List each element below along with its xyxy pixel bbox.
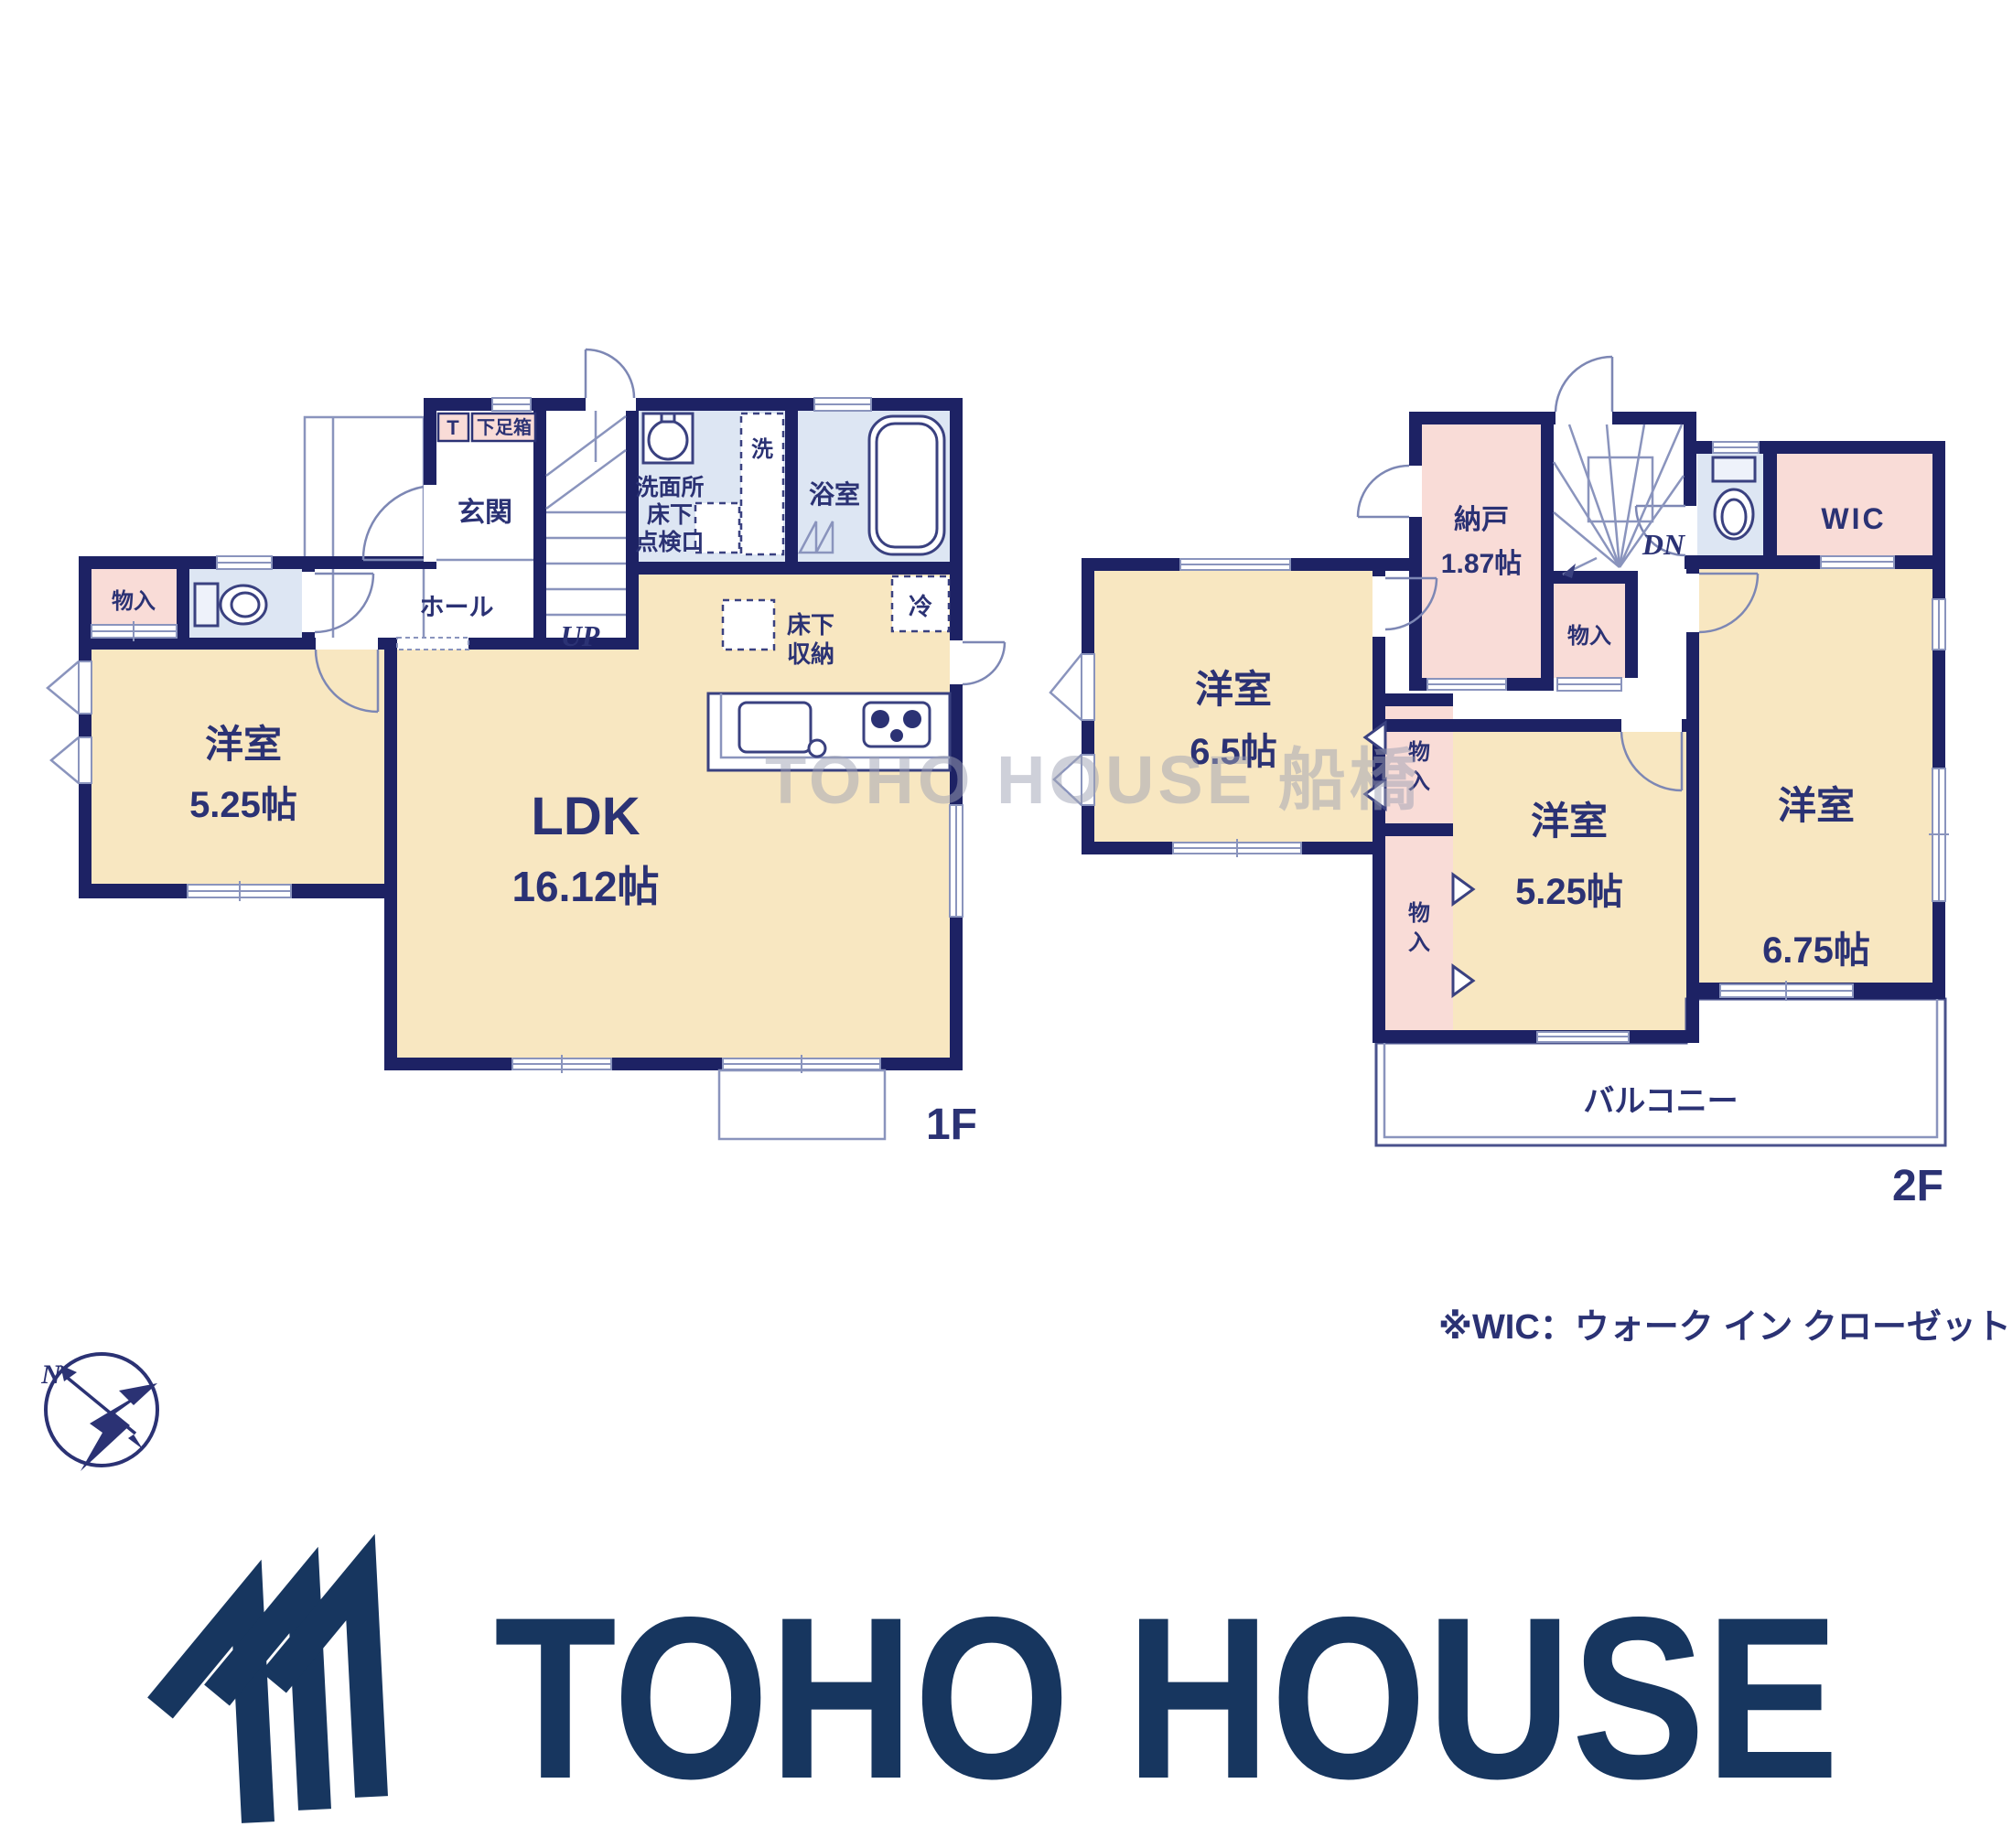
label-storeroom: 納戸 [1454,505,1509,535]
label-washroom-2: 床下 [647,501,693,528]
stairs-up-1f: UP [546,411,626,652]
label-storage-1f: 物入 [112,589,156,614]
label-western-525-size: 5.25帖 [1515,872,1623,912]
label-western-675: 洋室 [1778,784,1855,827]
compass-north-label: N [40,1359,62,1390]
stairs-down-label: DN [1642,528,1686,561]
room-western-675-fill [1699,569,1932,983]
label-closet-hall: 物入 [1567,624,1611,649]
toilet-tank-icon [195,584,218,626]
label-closet-lower-2: 入 [1408,930,1430,955]
underfloor-storage-box [723,600,774,650]
toilet-icon-2f [1713,457,1755,539]
hall-opening [397,638,468,650]
storeroom-door-arc [1358,466,1409,517]
label-western-room-1f-size: 5.25帖 [189,785,297,825]
label-western-525: 洋室 [1531,800,1608,843]
toilet-door-arc-1f [315,574,373,632]
logo-text: TOHO HOUSE [494,1570,1839,1827]
entrance-door-arc [363,487,424,560]
terrace-step [719,1070,885,1139]
label-washroom-3: 点検口 [635,530,704,555]
logo-mark [160,1577,371,1822]
compass-icon: N [40,1354,157,1471]
label-hall: ホール [420,594,494,621]
floor-plan-page: UP [0,0,2013,1848]
stairs-up-label: UP [561,619,600,652]
label-western-675-size: 6.75帖 [1762,930,1870,971]
label-underfloor-2: 収納 [787,640,834,668]
label-washroom-1: 洗面所 [635,475,704,500]
label-shoebox: 下足箱 [477,416,532,438]
label-wic: WIC [1821,502,1886,535]
label-bath: 浴室 [809,479,860,509]
label-shoebox-t: T [447,416,459,439]
label-ldk: LDK [531,787,640,846]
label-western-room-1f: 洋室 [205,723,282,766]
floor-plan-canvas: UP [0,0,2013,1848]
room-western-1f-fill [91,650,384,884]
label-western-65: 洋室 [1195,668,1272,711]
laundry-space-box [741,414,783,554]
wic-note: ※WIC：ウォーク イン クローゼット [1438,1308,2011,1347]
label-refrigerator: 冷 [909,593,932,620]
label-laundry: 洗 [751,437,773,462]
label-genkan: 玄関 [457,497,512,528]
watermark-text: TOHO HOUSE 船橋 [765,742,1421,818]
label-storeroom-size: 1.87帖 [1441,549,1522,579]
label-balcony: バルコニー [1583,1084,1738,1119]
floor-label-1f: 1F [926,1101,977,1149]
label-underfloor-1: 床下 [787,611,834,639]
brand-logo: TOHO HOUSE [160,1570,1839,1827]
stairs-down-2f: DN [1554,424,1686,578]
label-closet-lower-1: 物 [1408,901,1430,926]
floor-label-2f: 2F [1892,1162,1943,1210]
label-ldk-size: 16.12帖 [511,863,659,910]
